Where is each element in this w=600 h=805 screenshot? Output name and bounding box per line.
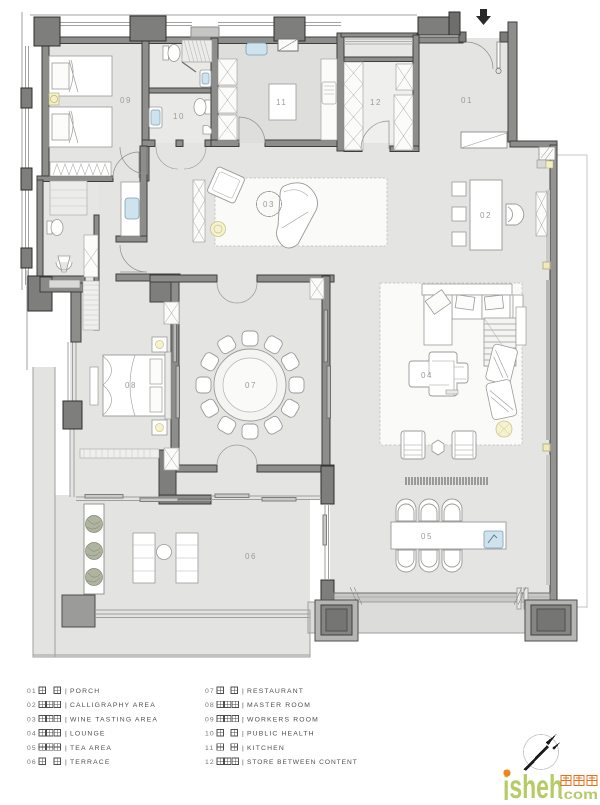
svg-text:02: 02 (480, 211, 492, 220)
svg-text:|: | (65, 731, 68, 738)
svg-text:|: | (242, 731, 245, 738)
svg-text:05: 05 (421, 532, 433, 541)
svg-text:04: 04 (27, 731, 37, 738)
svg-text:06: 06 (245, 552, 257, 561)
svg-text:09: 09 (120, 96, 132, 105)
svg-text:|: | (65, 745, 68, 752)
svg-text:05: 05 (27, 745, 37, 752)
svg-text:04: 04 (421, 371, 433, 380)
svg-text:11: 11 (205, 745, 214, 752)
svg-text:06: 06 (27, 759, 37, 766)
svg-text:|: | (242, 759, 245, 766)
svg-text:09: 09 (205, 716, 215, 723)
svg-text:|: | (242, 688, 245, 695)
svg-text:12: 12 (370, 98, 382, 107)
svg-text:PORCH: PORCH (70, 688, 100, 695)
svg-text:|: | (65, 716, 68, 723)
svg-text:KITCHEN: KITCHEN (247, 745, 285, 752)
svg-text:07: 07 (245, 381, 257, 390)
svg-text:10: 10 (205, 731, 215, 738)
svg-text:.com: .com (559, 786, 598, 800)
svg-text:WORKERS ROOM: WORKERS ROOM (247, 716, 319, 723)
svg-text:RESTAURANT: RESTAURANT (247, 688, 304, 695)
svg-text:WINE TASTING AREA: WINE TASTING AREA (70, 716, 158, 723)
svg-text:|: | (242, 702, 245, 709)
svg-text:TERRACE: TERRACE (70, 759, 111, 766)
svg-text:11: 11 (276, 98, 287, 107)
svg-text:08: 08 (125, 381, 137, 390)
svg-text:03: 03 (27, 716, 37, 723)
svg-text:02: 02 (27, 702, 37, 709)
svg-text:08: 08 (205, 702, 215, 709)
svg-text:MASTER ROOM: MASTER ROOM (247, 702, 311, 709)
svg-text:01: 01 (27, 688, 37, 695)
svg-text:12: 12 (205, 759, 215, 766)
svg-text:|: | (65, 688, 68, 695)
svg-text:01: 01 (461, 96, 473, 105)
svg-text:03: 03 (263, 200, 275, 209)
svg-text:|: | (65, 702, 68, 709)
svg-text:PUBLIC HEALTH: PUBLIC HEALTH (247, 731, 315, 738)
svg-text:STORE BETWEEN CONTENT: STORE BETWEEN CONTENT (247, 759, 358, 766)
svg-text:TEA AREA: TEA AREA (70, 745, 112, 752)
svg-text:CALLIGRAPHY AREA: CALLIGRAPHY AREA (70, 702, 156, 709)
svg-text:07: 07 (205, 688, 215, 695)
svg-text:10: 10 (173, 112, 185, 121)
svg-text:|: | (242, 745, 245, 752)
svg-text:|: | (242, 716, 245, 723)
svg-text:LOUNGE: LOUNGE (70, 731, 106, 738)
svg-text:|: | (65, 759, 68, 766)
